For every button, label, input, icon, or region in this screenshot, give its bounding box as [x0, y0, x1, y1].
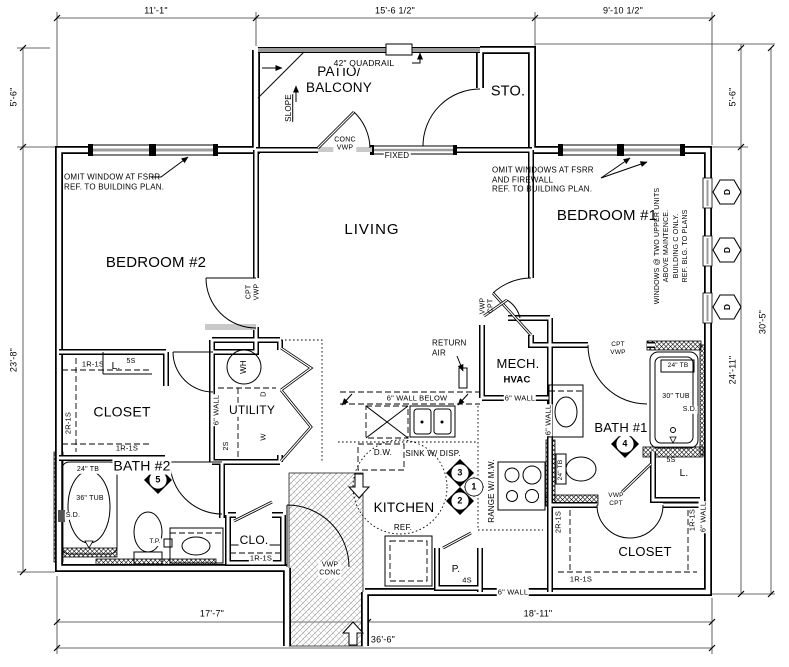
dim-top-bedroom2: 11'-1" [144, 6, 167, 17]
room-label-linen-right: L. [680, 468, 689, 480]
label-linen-right-shelves: 5S [667, 457, 676, 465]
dim-right-patio: 5'-6" [728, 88, 739, 107]
room-label-kitchen: KITCHEN [374, 500, 435, 516]
stair-hatch [289, 473, 363, 646]
dim-bottom-overall: 36'-6" [371, 635, 395, 646]
windows-right-wall [703, 178, 712, 323]
label-utility-shelves: 2S [223, 441, 231, 452]
room-label-bedroom1: BEDROOM #1 [557, 207, 657, 225]
room-label-bath2: BATH #2 [112, 458, 171, 475]
dim-left-patio: 5'-6" [9, 88, 20, 107]
label-linen-left-shelves: 5S [127, 358, 136, 366]
label-toilet-paper: T.P. [148, 538, 161, 546]
label-sink-disposal: SINK W/ DISP. [405, 449, 460, 459]
label-water-heater: WH [239, 360, 249, 374]
room-label-bedroom2: BEDROOM #2 [106, 254, 206, 272]
label-rod-shelf-clo: 1R-1S [249, 554, 273, 563]
marker-hex-d-3: D [722, 304, 732, 310]
label-6in-wall-below: 6" WALL BELOW [386, 394, 449, 403]
room-label-bath1: BATH #1 [593, 420, 648, 436]
label-cpt-vwp-bath1-door: CPT VWP [610, 341, 625, 357]
room-label-storage: STO. [491, 83, 525, 100]
label-cpt-vwp-bedroom2-door: CPT VWP [246, 283, 263, 302]
label-fixed-window: FIXED [384, 151, 411, 161]
room-label-patio: PATIO/ BALCONY [306, 64, 372, 96]
label-slope: SLOPE [284, 94, 294, 122]
label-2rod-shelf-closet-right: 2R-1S [554, 511, 563, 533]
floor-plan-linework [0, 0, 789, 667]
dim-right-overall: 30'-5" [758, 310, 769, 334]
room-label-utility: UTILITY [228, 403, 276, 417]
refrigerator [385, 536, 432, 586]
label-refrigerator: REF. [394, 523, 412, 533]
toilet-bath1-bowl [566, 457, 596, 481]
room-label-linen-left: L. [112, 361, 121, 373]
label-dryer: D [259, 391, 268, 397]
label-tub36: 36" TUB [75, 495, 105, 503]
vanity-bath1 [549, 385, 583, 437]
label-return-air: RETURN AIR [432, 338, 467, 357]
tub-bath2 [62, 462, 117, 554]
room-label-clo: CLO. [239, 533, 270, 547]
label-quadrail: 42" QUADRAIL [333, 58, 396, 68]
label-tub30: 30" TUB [661, 393, 691, 401]
window-bedroom1 [558, 144, 685, 156]
label-washer: W [259, 433, 268, 440]
label-6in-wall-mech: 6" WALL [504, 394, 536, 403]
marker-hex-d-1: D [722, 189, 732, 195]
label-rod-shelf-closet-left-bottom: 1R-1S [116, 444, 138, 453]
label-vwp-cpt-closet-door: VWP CPT [607, 492, 624, 508]
label-rod-shelf-closet-right-bottom: 1R-1S [570, 575, 592, 584]
label-rod-shelf-closet-left-top: 1R-1S [82, 360, 104, 369]
marker-diamond-2: 2 [457, 496, 462, 507]
window-bedroom2 [88, 144, 218, 156]
label-towel-bar-bath2: 24" TB [76, 466, 100, 474]
dim-top-living: 15'-6 1/2" [375, 6, 415, 17]
dim-top-bedroom1: 9'-10 1/2" [603, 6, 643, 17]
label-towel-bar-bath1-toilet: 24" TB [557, 459, 565, 482]
dim-left-main: 23'-8" [9, 348, 20, 372]
room-label-mech: MECH. [497, 356, 540, 372]
label-range-microwave: RANGE W/ M.W. [487, 458, 497, 524]
label-6in-wall-utility: 6" WALL [212, 394, 221, 426]
room-label-hvac: HVAC [503, 374, 530, 385]
room-label-closet-left: CLOSET [93, 404, 150, 421]
marker-diamond-5: 5 [155, 475, 160, 486]
marker-diamond-4: 4 [622, 439, 627, 450]
label-towel-bar-bath1-tub: 24" TB [668, 362, 689, 370]
range [498, 462, 545, 510]
marker-hex-d-2: D [722, 247, 732, 253]
toilet-bath2-bowl [134, 512, 162, 552]
note-omit-windows-right: OMIT WINDOWS AT FSRR AND FIREWALL REF. T… [492, 166, 594, 195]
room-label-living: LIVING [344, 221, 399, 239]
room-label-closet-right: CLOSET [618, 544, 671, 560]
marker-diamond-1: 1 [471, 482, 476, 493]
label-conc-vwp-patio: CONC VWP [333, 137, 356, 154]
floor-plan-sheet: 11'-1" 15'-6 1/2" 9'-10 1/2" 5'-6" 23'-8… [0, 0, 789, 667]
label-vwp-conc-entry: VWP CONC [318, 562, 341, 579]
marker-diamond-3: 3 [457, 468, 462, 479]
dim-bottom-left: 17'-7" [200, 609, 224, 620]
note-omit-window-left: OMIT WINDOW AT FSRR REF. TO BUILDING PLA… [64, 172, 164, 191]
dim-right-main: 24'-11" [728, 356, 739, 385]
tp-holder [164, 539, 172, 547]
label-6in-wall-kitchen: 6" WALL [544, 404, 553, 436]
patio-guardrail [258, 44, 480, 55]
note-windows-upper-units: WINDOWS @ TWO UPPER UNITS ABOVE MAINTENC… [653, 188, 691, 305]
kitchen-sink [410, 406, 455, 437]
label-vwp-cpt-bedroom1-door: VWP CPT [480, 298, 497, 315]
label-pantry: P. [452, 564, 461, 576]
label-dishwasher: D.W. [374, 448, 392, 458]
dim-bottom-right: 18'-11" [524, 609, 553, 620]
label-6in-wall-right: 6" WALL [699, 501, 708, 533]
label-2rod-shelf-closet-left: 2R-1S [64, 412, 73, 434]
label-6in-wall-bottom: 6" WALL [497, 588, 529, 597]
label-pantry-shelves: 4S [462, 576, 472, 585]
label-soap-dish-bath2: S.D. [65, 512, 81, 520]
label-rod-shelf-closet-right-side: 1R-1S [688, 509, 697, 531]
label-soap-dish-bath1: S.D. [682, 406, 698, 414]
